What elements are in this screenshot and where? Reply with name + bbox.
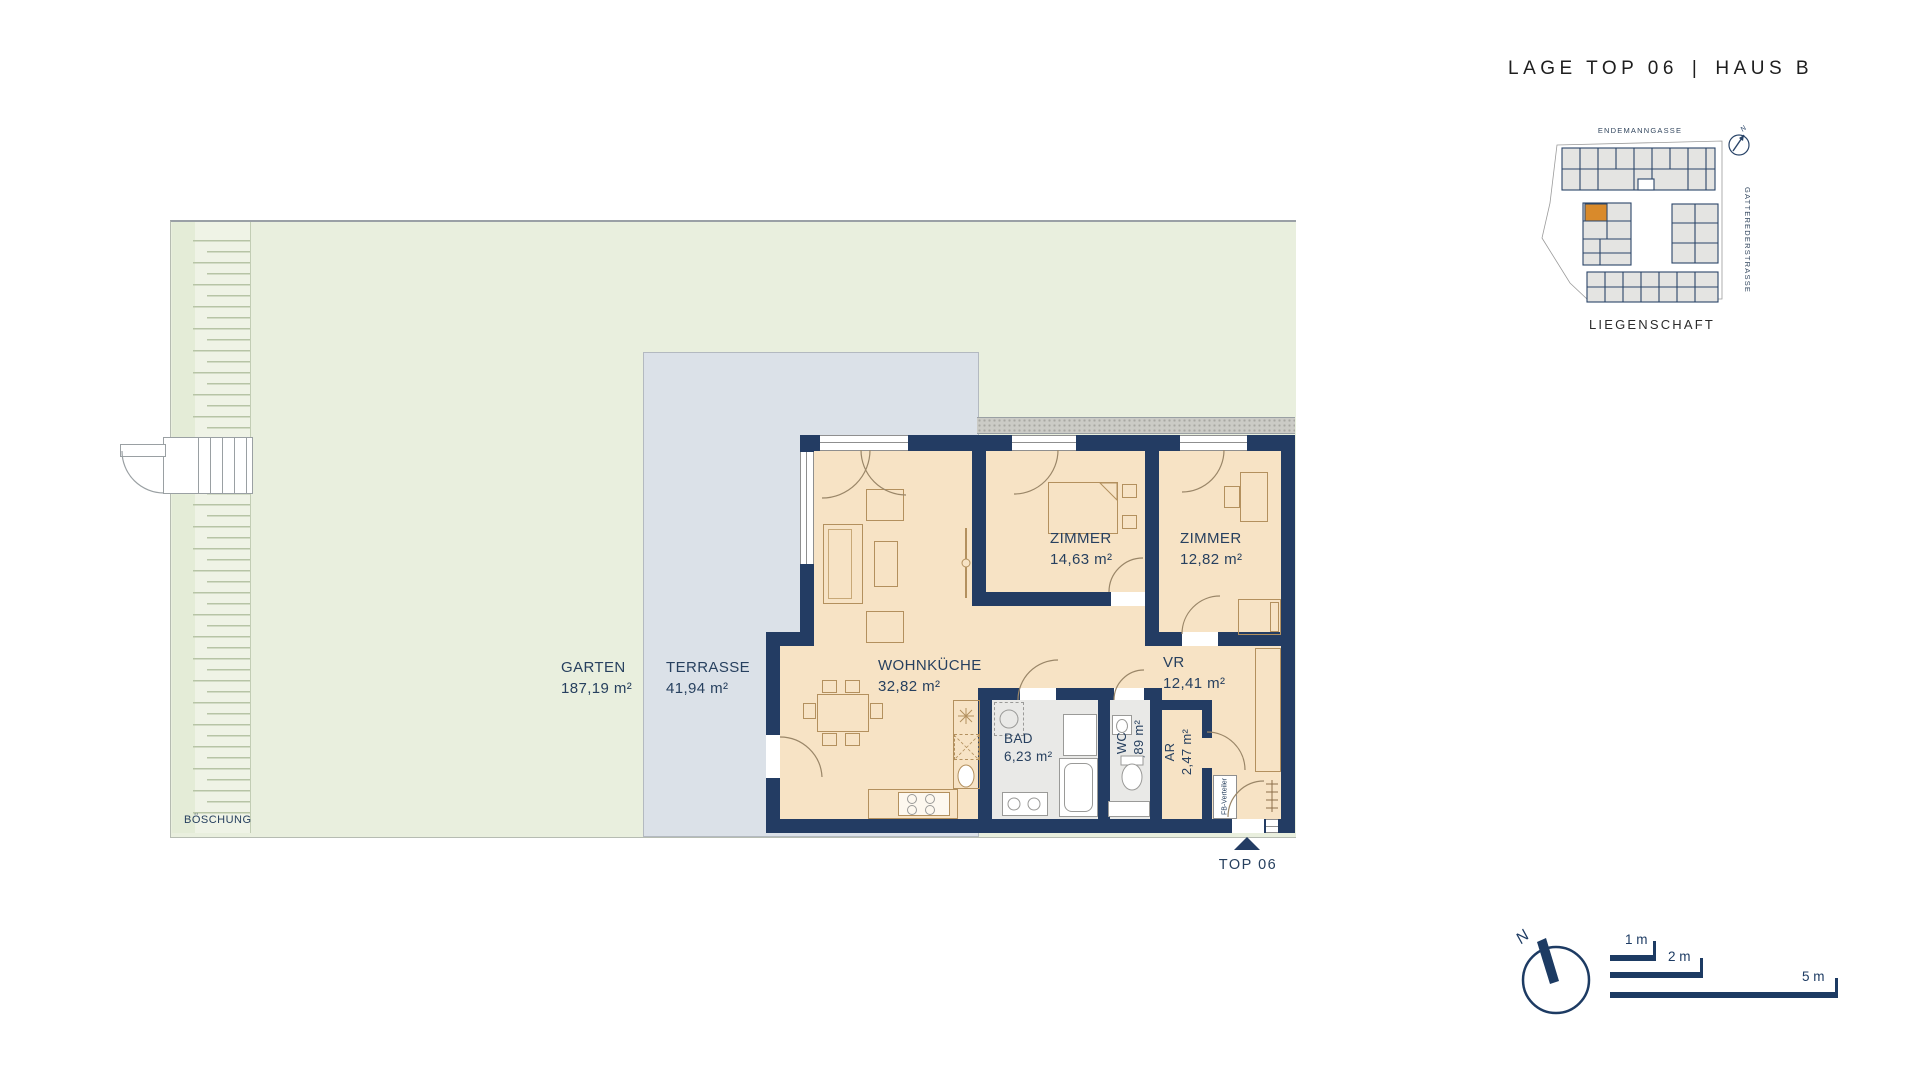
site-caption: LIEGENSCHAFT	[1589, 317, 1715, 332]
wc-basin-bowl	[1117, 720, 1128, 733]
site-building-south	[1587, 272, 1718, 302]
cooktop-burner	[926, 795, 935, 804]
kitchen-lamp-icon	[958, 708, 974, 724]
radiator-valve	[962, 559, 970, 567]
door-swing-arc	[1018, 660, 1058, 700]
door-swing-arc	[861, 450, 906, 495]
door-swing-arc	[822, 450, 870, 498]
kitchen-sink	[958, 765, 974, 787]
street-label-top: ENDEMANNGASSE	[1598, 126, 1682, 135]
floor-plan-page: LAGE TOP 06 | HAUS B BÖSCHUNG	[0, 0, 1920, 1080]
vanity-basin	[1028, 798, 1040, 810]
door-swing-arc	[1014, 450, 1058, 494]
cooktop-burner	[926, 806, 935, 815]
door-swing-arc	[1182, 596, 1220, 634]
bed-pillow-mark	[1100, 483, 1117, 500]
street-label-right: GATTEREDERSTRASSE	[1743, 187, 1752, 293]
gate-swing-arc	[122, 451, 164, 493]
door-swing-arc	[1228, 781, 1264, 817]
site-building-north	[1562, 148, 1715, 190]
door-swing-arc	[1114, 670, 1144, 700]
compass-needle	[1537, 938, 1559, 984]
cooktop-burner	[908, 806, 917, 815]
site-building-east	[1672, 204, 1718, 263]
shower-drain	[1000, 710, 1018, 728]
door-swing-arc	[1109, 558, 1143, 592]
site-unit-top06-highlight	[1585, 204, 1607, 221]
toilet-bowl	[1122, 764, 1142, 790]
door-swing-arc	[1207, 732, 1245, 770]
compass-north-label: N	[1513, 927, 1533, 948]
vanity-basin	[1008, 798, 1020, 810]
radiator-marks	[1266, 780, 1278, 812]
site-north-label: N	[1740, 124, 1749, 133]
door-swing-arc	[780, 737, 822, 777]
site-plan: N ENDEMANNGASSE GATTEREDERSTRASSE LIEGEN…	[1530, 103, 1870, 348]
door-swing-arc	[1182, 450, 1224, 492]
cooktop-burner	[908, 795, 917, 804]
